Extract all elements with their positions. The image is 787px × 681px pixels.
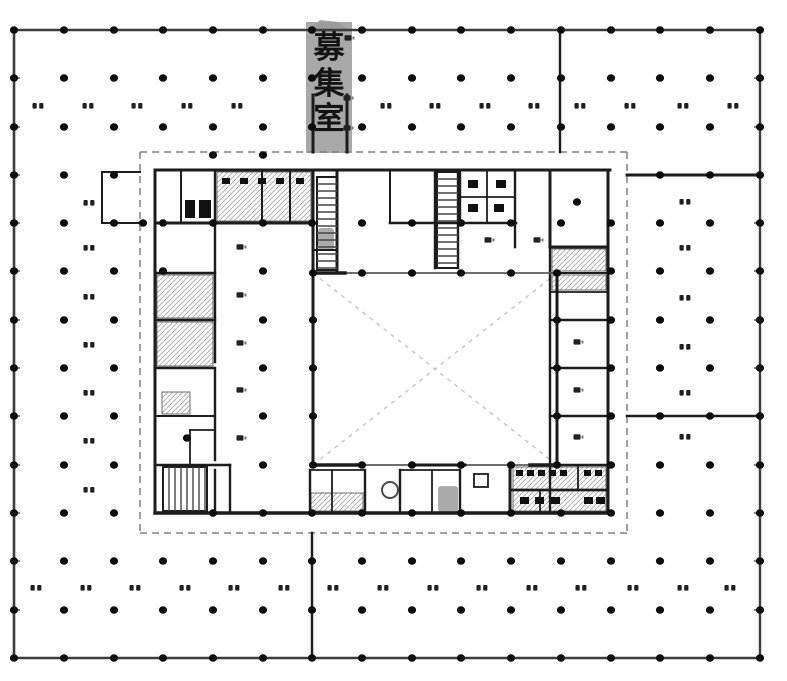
fixture (468, 180, 478, 188)
column-dot (756, 316, 764, 323)
floor-plan-svg: 募集室 (0, 0, 787, 681)
column-dot (507, 74, 515, 81)
fixture (527, 470, 534, 476)
dimension-mark (90, 294, 94, 300)
dimension-mark (725, 585, 729, 591)
dimension-mark (90, 390, 94, 396)
column-dot (209, 151, 217, 158)
dimension-mark (90, 200, 94, 206)
column-dot (110, 219, 118, 226)
column-dot (756, 123, 764, 130)
dimension-mark (533, 585, 537, 591)
column-dot (607, 654, 615, 661)
column-dot (139, 219, 147, 226)
room-label-mark (237, 244, 244, 249)
column-dot (308, 557, 316, 564)
column-dot (706, 267, 714, 274)
column-dot (60, 654, 68, 661)
column-dot (408, 654, 416, 661)
dimension-mark (581, 103, 585, 109)
paper-background (0, 0, 787, 681)
dimension-mark (436, 103, 440, 109)
room-label-mark (582, 389, 584, 392)
column-dot (656, 364, 664, 371)
fixture (199, 200, 211, 218)
column-dot (756, 364, 764, 371)
fixture (595, 470, 602, 476)
dimension-mark (235, 585, 239, 591)
column-dot (110, 74, 118, 81)
column-dot (553, 364, 561, 371)
column-dot (110, 364, 118, 371)
column-dot (557, 557, 565, 564)
dimension-mark (686, 344, 690, 350)
dimension-mark (625, 103, 629, 109)
column-dot (259, 74, 267, 81)
column-dot (209, 74, 217, 81)
dimension-mark (90, 487, 94, 493)
column-dot (553, 461, 561, 468)
column-dot (557, 606, 565, 613)
column-dot (259, 509, 267, 516)
dimension-mark (180, 585, 184, 591)
column-dot (60, 267, 68, 274)
dimension-mark (684, 585, 688, 591)
room-label-mark (344, 95, 351, 100)
column-dot (358, 557, 366, 564)
dimension-mark (486, 103, 490, 109)
fixture (596, 497, 605, 504)
room-label-mark (352, 97, 354, 100)
dimension-mark (31, 585, 35, 591)
column-dot (309, 461, 317, 468)
column-dot (457, 219, 465, 226)
dimension-mark (334, 585, 338, 591)
column-dot (408, 219, 416, 226)
column-dot (159, 74, 167, 81)
dimension-mark (428, 585, 432, 591)
room-name-char: 集 (313, 66, 345, 102)
dimension-mark (84, 245, 88, 251)
column-dot (358, 606, 366, 613)
dimension-mark (229, 585, 233, 591)
dimension-mark (384, 585, 388, 591)
dimension-mark (90, 245, 94, 251)
fixture (185, 200, 195, 218)
dimension-mark (387, 103, 391, 109)
column-dot (10, 123, 18, 130)
column-dot (259, 123, 267, 130)
room-label-mark (245, 246, 247, 249)
column-dot (358, 509, 366, 516)
column-dot (607, 267, 615, 274)
column-dot (209, 509, 217, 516)
dimension-mark (680, 245, 684, 251)
column-dot (159, 557, 167, 564)
room-label-mark (237, 435, 244, 440)
column-dot (110, 171, 118, 178)
column-dot (756, 267, 764, 274)
column-dot (408, 606, 416, 613)
column-dot (209, 26, 217, 33)
fixture (520, 497, 529, 504)
fixture (584, 470, 591, 476)
column-dot (60, 412, 68, 419)
dimension-mark (188, 103, 192, 109)
dimension-mark (138, 103, 142, 109)
dimension-mark (634, 585, 638, 591)
outline-rect (474, 474, 488, 487)
room-label-mark (237, 387, 244, 392)
room-label-mark (344, 125, 351, 130)
column-dot (308, 509, 316, 516)
column-dot (607, 364, 615, 371)
column-dot (408, 26, 416, 33)
dimension-mark (576, 585, 580, 591)
dimension-mark (182, 103, 186, 109)
column-dot (607, 412, 615, 419)
column-dot (308, 219, 316, 226)
column-dot (607, 606, 615, 613)
dimension-mark (39, 103, 43, 109)
column-dot (656, 123, 664, 130)
fixture (516, 470, 523, 476)
column-dot (259, 151, 267, 158)
column-dot (706, 412, 714, 419)
column-dot (259, 654, 267, 661)
fixture (549, 470, 556, 476)
column-dot (259, 267, 267, 274)
column-dot (573, 198, 581, 205)
column-dot (756, 171, 764, 178)
column-dot (10, 606, 18, 613)
column-dot (308, 654, 316, 661)
dimension-mark (84, 294, 88, 300)
column-dot (408, 509, 416, 516)
dimension-mark (686, 199, 690, 205)
room-label-mark (245, 342, 247, 345)
room-label-mark (237, 340, 244, 345)
column-dot (553, 316, 561, 323)
column-dot (507, 123, 515, 130)
column-dot (607, 26, 615, 33)
column-dot (408, 269, 416, 276)
room-label-mark (237, 292, 244, 297)
dimension-mark (83, 103, 87, 109)
column-dot (110, 509, 118, 516)
dimension-mark (686, 434, 690, 440)
gray-blob (438, 486, 458, 512)
column-dot (507, 557, 515, 564)
column-dot (159, 606, 167, 613)
column-dot (457, 269, 465, 276)
column-dot (60, 557, 68, 564)
column-dot (607, 74, 615, 81)
room-label-mark (245, 389, 247, 392)
column-dot (110, 461, 118, 468)
fixture (468, 204, 478, 212)
column-dot (60, 123, 68, 130)
column-dot (309, 412, 317, 419)
room-label-mark (574, 434, 581, 439)
room-label-mark (352, 127, 354, 130)
dimension-mark (136, 585, 140, 591)
dimension-mark (279, 585, 283, 591)
column-dot (60, 219, 68, 226)
dimension-mark (582, 585, 586, 591)
column-dot (706, 74, 714, 81)
column-dot (507, 606, 515, 613)
column-dot (557, 26, 565, 33)
column-dot (10, 74, 18, 81)
dimension-mark (628, 585, 632, 591)
column-dot (10, 316, 18, 323)
hatch-area (157, 322, 213, 366)
room-label-mark (245, 294, 247, 297)
dimension-mark (477, 585, 481, 591)
dimension-mark (37, 585, 41, 591)
column-dot (10, 267, 18, 274)
fixture (496, 180, 506, 188)
dimension-mark (680, 390, 684, 396)
column-dot (10, 461, 18, 468)
column-dot (209, 606, 217, 613)
column-dot (656, 654, 664, 661)
column-dot (60, 26, 68, 33)
column-dot (457, 461, 465, 468)
hatch-area (552, 275, 606, 290)
hatch-area (552, 249, 606, 271)
dimension-mark (89, 103, 93, 109)
column-dot (607, 557, 615, 564)
column-dot (209, 557, 217, 564)
dimension-mark (680, 344, 684, 350)
column-dot (110, 316, 118, 323)
column-dot (607, 509, 615, 516)
column-dot (358, 26, 366, 33)
fixture (535, 497, 544, 504)
column-dot (756, 509, 764, 516)
room-label-mark (485, 237, 492, 242)
dimension-mark (186, 585, 190, 591)
room-label-mark (493, 239, 495, 242)
column-dot (706, 509, 714, 516)
column-dot (10, 557, 18, 564)
column-dot (457, 606, 465, 613)
room-label-mark (574, 339, 581, 344)
column-dot (457, 509, 465, 516)
column-dot (159, 654, 167, 661)
dimension-mark (575, 103, 579, 109)
column-dot (309, 269, 317, 276)
column-dot (656, 26, 664, 33)
room-label-mark (574, 387, 581, 392)
column-dot (656, 74, 664, 81)
column-dot (110, 606, 118, 613)
fixture (240, 178, 248, 184)
column-dot (507, 509, 515, 516)
fixture (551, 497, 560, 504)
column-dot (60, 316, 68, 323)
column-dot (656, 557, 664, 564)
column-dot (358, 123, 366, 130)
fixture (494, 204, 504, 212)
column-dot (10, 509, 18, 516)
column-dot (607, 123, 615, 130)
column-dot (656, 606, 664, 613)
column-dot (706, 654, 714, 661)
column-dot (10, 412, 18, 419)
column-dot (656, 509, 664, 516)
dimension-mark (90, 342, 94, 348)
dimension-mark (232, 103, 236, 109)
dimension-mark (678, 585, 682, 591)
dimension-mark (132, 103, 136, 109)
fixture (258, 178, 266, 184)
dimension-mark (434, 585, 438, 591)
dimension-mark (90, 438, 94, 444)
dimension-mark (483, 585, 487, 591)
dimension-mark (430, 103, 434, 109)
column-dot (607, 316, 615, 323)
column-dot (756, 461, 764, 468)
column-dot (309, 364, 317, 371)
column-dot (706, 461, 714, 468)
column-dot (408, 74, 416, 81)
dimension-mark (33, 103, 37, 109)
dimension-mark (130, 585, 134, 591)
column-dot (159, 26, 167, 33)
dimension-mark (686, 245, 690, 251)
column-dot (553, 412, 561, 419)
dimension-mark (631, 103, 635, 109)
column-dot (209, 219, 217, 226)
column-dot (756, 26, 764, 33)
column-dot (209, 654, 217, 661)
column-dot (706, 364, 714, 371)
hatch-area (157, 275, 213, 318)
column-dot (209, 123, 217, 130)
column-dot (259, 461, 267, 468)
column-dot (507, 219, 515, 226)
dimension-mark (680, 199, 684, 205)
column-dot (259, 557, 267, 564)
column-dot (60, 171, 68, 178)
fixture (538, 470, 545, 476)
column-dot (656, 412, 664, 419)
column-dot (358, 219, 366, 226)
column-dot (60, 461, 68, 468)
column-dot (706, 606, 714, 613)
column-dot (10, 26, 18, 33)
dimension-mark (378, 585, 382, 591)
column-dot (457, 123, 465, 130)
column-dot (60, 509, 68, 516)
column-dot (259, 606, 267, 613)
column-dot (656, 267, 664, 274)
column-dot (756, 74, 764, 81)
column-dot (706, 219, 714, 226)
dimension-mark (684, 103, 688, 109)
dimension-mark (678, 103, 682, 109)
column-dot (60, 606, 68, 613)
column-dot (706, 171, 714, 178)
room-name-char: 室 (314, 101, 345, 137)
column-dot (110, 26, 118, 33)
column-dot (557, 123, 565, 130)
column-dot (756, 557, 764, 564)
column-dot (159, 267, 167, 274)
column-dot (706, 123, 714, 130)
column-dot (110, 654, 118, 661)
column-dot (756, 606, 764, 613)
column-dot (309, 316, 317, 323)
column-dot (706, 316, 714, 323)
column-dot (557, 74, 565, 81)
dimension-mark (680, 434, 684, 440)
column-dot (259, 412, 267, 419)
column-dot (457, 654, 465, 661)
fixture (584, 497, 593, 504)
dimension-mark (535, 103, 539, 109)
column-dot (183, 434, 191, 441)
column-dot (557, 509, 565, 516)
dimension-mark (731, 585, 735, 591)
fixture (222, 178, 230, 184)
dimension-mark (728, 103, 732, 109)
column-dot (457, 557, 465, 564)
column-dot (259, 364, 267, 371)
column-dot (358, 654, 366, 661)
column-dot (60, 74, 68, 81)
column-dot (656, 171, 664, 178)
room-label-mark (582, 436, 584, 439)
dimension-mark (686, 390, 690, 396)
dimension-mark (84, 438, 88, 444)
column-dot (259, 26, 267, 33)
dimension-mark (529, 103, 533, 109)
column-dot (607, 461, 615, 468)
dimension-mark (87, 585, 91, 591)
dimension-mark (734, 103, 738, 109)
column-dot (10, 364, 18, 371)
dimension-mark (680, 295, 684, 301)
column-dot (706, 26, 714, 33)
column-dot (756, 412, 764, 419)
column-dot (507, 269, 515, 276)
column-dot (159, 123, 167, 130)
dimension-mark (328, 585, 332, 591)
hatch-area (162, 392, 190, 414)
dimension-mark (84, 200, 88, 206)
column-dot (358, 461, 366, 468)
room-label-mark (345, 35, 352, 40)
column-dot (457, 74, 465, 81)
fixture (296, 178, 304, 184)
column-dot (507, 26, 515, 33)
column-dot (656, 219, 664, 226)
column-dot (259, 219, 267, 226)
column-dot (110, 267, 118, 274)
column-dot (553, 269, 561, 276)
column-dot (10, 654, 18, 661)
column-dot (358, 74, 366, 81)
column-dot (457, 26, 465, 33)
room-label-mark (353, 37, 355, 40)
room-name-char: 募 (313, 30, 346, 66)
column-dot (110, 123, 118, 130)
dimension-mark (527, 585, 531, 591)
